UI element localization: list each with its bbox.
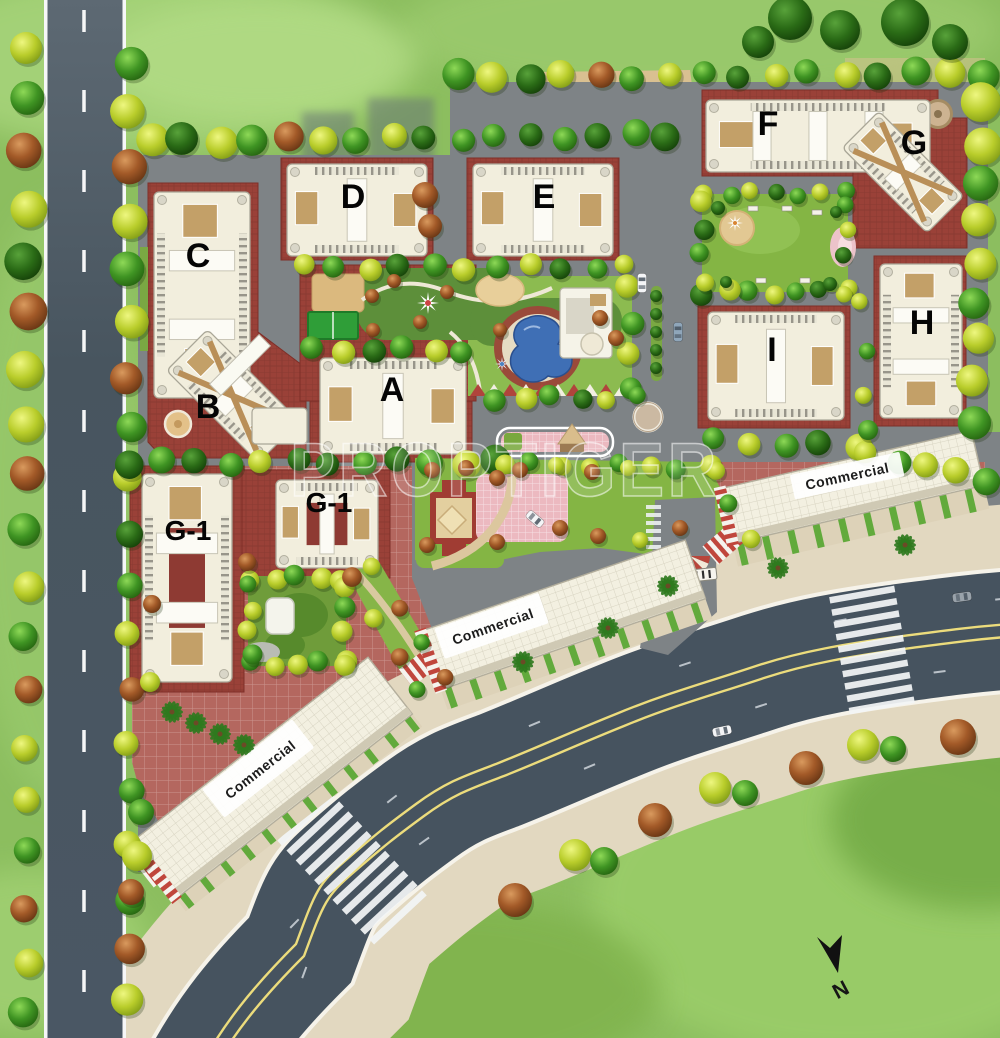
tree-icon bbox=[206, 127, 238, 159]
tree-icon bbox=[963, 323, 994, 354]
site-plan: PROPTIGER C B D E A F G H I G-1 G-1 Comm… bbox=[0, 0, 1000, 1038]
tree-icon bbox=[128, 799, 154, 825]
tree-icon bbox=[7, 513, 40, 546]
tree-icon bbox=[720, 276, 732, 288]
tree-icon bbox=[413, 634, 429, 650]
building-label-h: H bbox=[910, 304, 935, 342]
tree-icon bbox=[112, 204, 147, 239]
tree-icon bbox=[719, 494, 737, 512]
tree-icon bbox=[334, 597, 355, 618]
tree-icon bbox=[765, 285, 784, 304]
tree-icon bbox=[823, 277, 837, 291]
tree-icon bbox=[694, 220, 714, 240]
tree-icon bbox=[859, 343, 876, 360]
building-label-g: G bbox=[901, 124, 927, 162]
tree-icon bbox=[110, 94, 145, 129]
tree-icon bbox=[964, 248, 996, 280]
tree-icon bbox=[6, 351, 43, 388]
tree-icon bbox=[573, 390, 592, 409]
tree-icon bbox=[110, 362, 142, 394]
tree-icon bbox=[732, 780, 758, 806]
tree-icon bbox=[364, 609, 383, 628]
tree-icon bbox=[588, 259, 608, 279]
tree-icon bbox=[623, 119, 650, 146]
tree-icon bbox=[638, 803, 672, 837]
tree-icon bbox=[307, 651, 328, 672]
tree-icon bbox=[520, 253, 542, 275]
tree-icon bbox=[10, 81, 44, 115]
tree-icon bbox=[726, 66, 749, 89]
tree-icon bbox=[483, 389, 506, 412]
tree-icon bbox=[615, 274, 639, 298]
tree-icon bbox=[366, 323, 380, 337]
tree-icon bbox=[386, 254, 409, 277]
tree-icon bbox=[973, 468, 1000, 496]
tree-icon bbox=[696, 274, 714, 292]
tree-icon bbox=[115, 47, 149, 81]
tree-icon bbox=[672, 520, 688, 536]
tree-icon bbox=[590, 847, 618, 875]
tree-icon bbox=[794, 59, 818, 83]
building-label-g1-west: G-1 bbox=[165, 515, 212, 546]
tree-icon bbox=[181, 448, 206, 473]
tree-icon bbox=[413, 315, 427, 329]
tree-icon bbox=[15, 676, 43, 704]
tree-icon bbox=[690, 243, 709, 262]
tree-icon bbox=[309, 126, 337, 154]
tree-icon bbox=[342, 567, 362, 587]
tree-icon bbox=[820, 10, 860, 50]
tree-icon bbox=[11, 735, 38, 762]
tree-icon bbox=[4, 243, 42, 281]
watermark-text: PROPTIGER bbox=[290, 428, 720, 513]
tree-icon bbox=[118, 879, 144, 905]
tree-icon bbox=[115, 450, 144, 479]
tree-icon bbox=[858, 420, 878, 440]
tree-icon bbox=[963, 165, 998, 200]
tree-icon bbox=[789, 188, 805, 204]
tree-icon bbox=[519, 123, 542, 146]
tree-icon bbox=[442, 58, 474, 90]
tree-icon bbox=[559, 839, 591, 871]
tree-icon bbox=[418, 214, 442, 238]
tree-icon bbox=[699, 772, 731, 804]
tree-icon bbox=[110, 251, 145, 286]
tree-icon bbox=[650, 290, 662, 302]
tree-icon bbox=[10, 293, 48, 331]
tree-icon bbox=[964, 127, 1000, 165]
tree-icon bbox=[236, 125, 267, 156]
tree-icon bbox=[143, 595, 161, 613]
building-label-d: D bbox=[341, 178, 366, 216]
tree-icon bbox=[847, 729, 879, 761]
tree-icon bbox=[615, 255, 634, 274]
tree-icon bbox=[238, 553, 256, 571]
building-label-a: A bbox=[380, 371, 405, 409]
tree-icon bbox=[864, 62, 891, 89]
tree-icon bbox=[148, 446, 175, 473]
tree-icon bbox=[136, 123, 169, 156]
tree-icon bbox=[584, 123, 610, 149]
tree-icon bbox=[881, 0, 929, 46]
tree-icon bbox=[294, 254, 315, 275]
tree-icon bbox=[855, 387, 872, 404]
tree-icon bbox=[363, 339, 387, 363]
tree-icon bbox=[8, 622, 37, 651]
tree-icon bbox=[115, 621, 140, 646]
tree-icon bbox=[658, 63, 682, 87]
tree-icon bbox=[546, 60, 574, 88]
tree-icon bbox=[322, 256, 344, 278]
tree-icon bbox=[365, 289, 379, 303]
tree-icon bbox=[219, 453, 243, 477]
tree-icon bbox=[363, 558, 380, 575]
tree-icon bbox=[334, 655, 355, 676]
tree-icon bbox=[115, 305, 149, 339]
tree-icon bbox=[14, 949, 43, 978]
tree-icon bbox=[116, 521, 143, 548]
building-label-e: E bbox=[533, 178, 556, 216]
tree-icon bbox=[482, 124, 505, 147]
tree-icon bbox=[114, 934, 145, 965]
tree-icon bbox=[650, 344, 662, 356]
tree-icon bbox=[359, 259, 382, 282]
building-label-b: B bbox=[196, 388, 221, 426]
tree-icon bbox=[789, 751, 823, 785]
tree-icon bbox=[539, 385, 560, 406]
tree-icon bbox=[498, 883, 532, 917]
tree-icon bbox=[834, 62, 860, 88]
tree-icon bbox=[342, 127, 369, 154]
tree-icon bbox=[628, 387, 645, 404]
tree-icon bbox=[711, 201, 725, 215]
tree-icon bbox=[940, 719, 976, 755]
tree-icon bbox=[516, 388, 538, 410]
tree-icon bbox=[8, 997, 38, 1027]
tree-icon bbox=[409, 681, 426, 698]
tree-icon bbox=[742, 530, 760, 548]
tree-icon bbox=[239, 576, 256, 593]
tree-icon bbox=[901, 57, 930, 86]
tree-icon bbox=[516, 64, 546, 94]
tree-icon bbox=[632, 532, 648, 548]
tree-icon bbox=[486, 256, 509, 279]
tree-icon bbox=[592, 310, 608, 326]
tree-icon bbox=[851, 293, 867, 309]
tree-icon bbox=[932, 24, 968, 60]
tree-icon bbox=[742, 26, 774, 58]
building-label-i: I bbox=[767, 331, 776, 369]
tree-icon bbox=[590, 528, 606, 544]
tree-icon bbox=[489, 534, 505, 550]
tree-icon bbox=[114, 731, 139, 756]
tree-icon bbox=[10, 191, 47, 228]
tree-icon bbox=[13, 787, 39, 813]
tree-icon bbox=[650, 326, 662, 338]
tree-icon bbox=[311, 568, 332, 589]
tree-icon bbox=[13, 571, 44, 602]
car-icon bbox=[674, 323, 683, 342]
tree-icon bbox=[284, 565, 305, 586]
tree-icon bbox=[425, 340, 448, 363]
tree-icon bbox=[452, 258, 475, 281]
building-label-g1-central: G-1 bbox=[306, 487, 353, 518]
tree-icon bbox=[419, 537, 435, 553]
tree-icon bbox=[738, 433, 761, 456]
tree-icon bbox=[650, 362, 662, 374]
tree-icon bbox=[332, 341, 355, 364]
building-label-f: F bbox=[758, 105, 779, 143]
tree-icon bbox=[390, 335, 413, 358]
tree-icon bbox=[111, 983, 143, 1015]
tree-icon bbox=[140, 672, 160, 692]
tree-icon bbox=[723, 187, 740, 204]
tree-icon bbox=[651, 122, 680, 151]
tree-icon bbox=[288, 655, 308, 675]
tree-icon bbox=[450, 341, 472, 363]
tree-icon bbox=[608, 330, 624, 346]
tree-icon bbox=[765, 64, 788, 87]
tree-icon bbox=[10, 32, 42, 64]
tree-icon bbox=[830, 206, 842, 218]
tree-icon bbox=[8, 406, 44, 442]
site-plan-canvas: PROPTIGER C B D E A F G H I G-1 G-1 Comm… bbox=[0, 0, 1000, 1038]
tree-icon bbox=[588, 62, 614, 88]
tree-icon bbox=[117, 573, 143, 599]
tree-icon bbox=[243, 644, 263, 664]
tree-icon bbox=[412, 182, 438, 208]
tree-icon bbox=[619, 66, 644, 91]
tree-icon bbox=[476, 62, 507, 93]
tree-icon bbox=[331, 621, 352, 642]
tree-icon bbox=[880, 736, 906, 762]
tree-icon bbox=[961, 82, 1000, 122]
tree-icon bbox=[913, 452, 938, 477]
building-g1-west bbox=[142, 474, 232, 682]
tree-icon bbox=[274, 122, 304, 152]
tree-icon bbox=[650, 308, 662, 320]
tree-icon bbox=[10, 456, 45, 491]
tree-icon bbox=[6, 133, 42, 169]
tree-icon bbox=[741, 182, 758, 199]
tree-icon bbox=[300, 336, 323, 359]
tree-icon bbox=[775, 434, 799, 458]
tree-icon bbox=[165, 122, 198, 155]
tree-icon bbox=[122, 841, 152, 871]
tree-icon bbox=[116, 412, 146, 442]
tree-icon bbox=[382, 123, 407, 148]
tree-icon bbox=[411, 126, 435, 150]
tree-icon bbox=[452, 129, 475, 152]
building-label-c: C bbox=[186, 237, 211, 275]
tree-icon bbox=[553, 127, 577, 151]
tree-icon bbox=[956, 365, 988, 397]
tree-icon bbox=[958, 406, 991, 439]
car-icon bbox=[638, 274, 647, 293]
tree-icon bbox=[10, 895, 37, 922]
tree-icon bbox=[14, 837, 40, 863]
tree-icon bbox=[835, 247, 852, 264]
tree-icon bbox=[423, 253, 447, 277]
tree-icon bbox=[942, 457, 969, 484]
tree-icon bbox=[112, 149, 147, 184]
tree-icon bbox=[387, 274, 401, 288]
tree-icon bbox=[805, 430, 831, 456]
tree-icon bbox=[690, 190, 712, 212]
tree-icon bbox=[961, 203, 994, 236]
tree-icon bbox=[493, 323, 507, 337]
tree-icon bbox=[549, 258, 570, 279]
tree-icon bbox=[391, 648, 409, 666]
tree-icon bbox=[958, 288, 989, 319]
tree-icon bbox=[244, 602, 262, 620]
tree-icon bbox=[621, 312, 644, 335]
tree-icon bbox=[440, 285, 454, 299]
tree-icon bbox=[238, 621, 257, 640]
tree-icon bbox=[693, 61, 716, 84]
tree-icon bbox=[597, 391, 615, 409]
tree-icon bbox=[840, 222, 856, 238]
tree-icon bbox=[437, 669, 453, 685]
tree-icon bbox=[265, 657, 284, 676]
tree-icon bbox=[812, 183, 829, 200]
tree-icon bbox=[248, 450, 271, 473]
tree-icon bbox=[391, 600, 408, 617]
tree-icon bbox=[768, 184, 784, 200]
tree-icon bbox=[552, 520, 568, 536]
tree-icon bbox=[787, 282, 805, 300]
